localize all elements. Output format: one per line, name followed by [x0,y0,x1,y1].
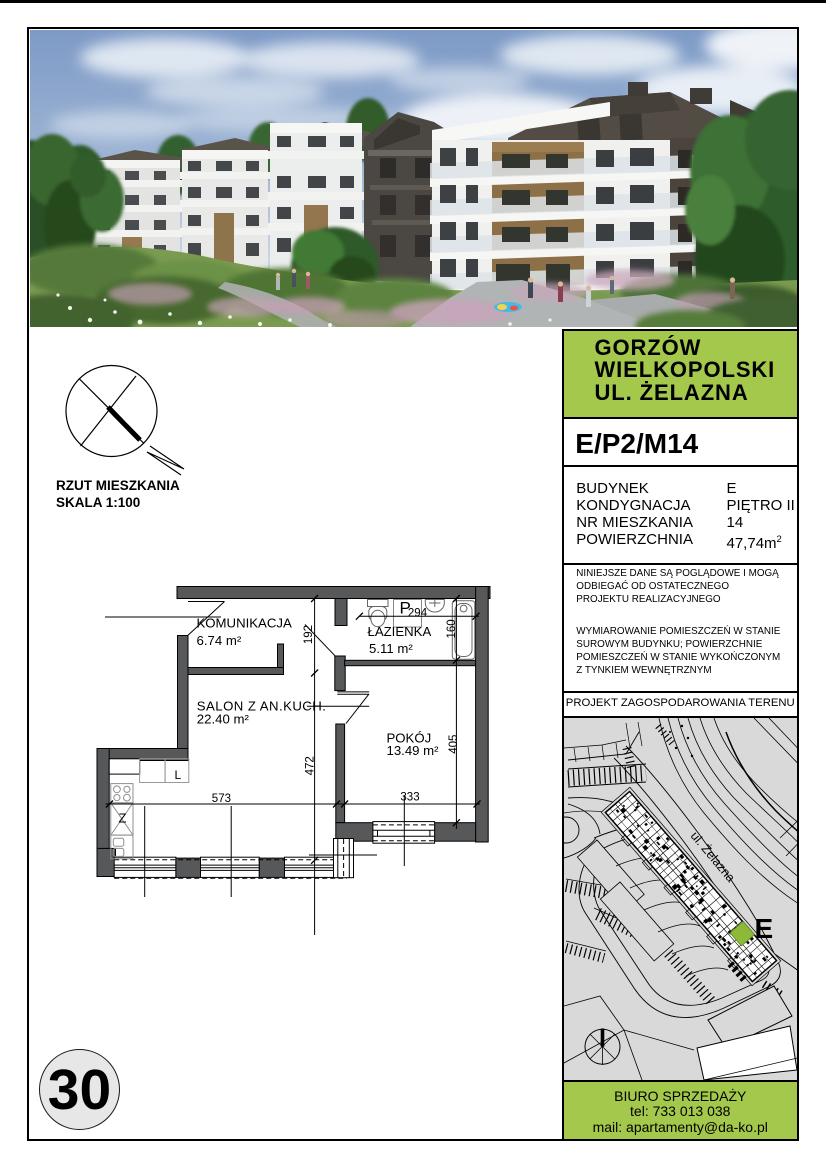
svg-text:6.74 m²: 6.74 m² [197,633,242,648]
svg-text:160: 160 [446,619,458,638]
svg-text:KOMUNIKACJA: KOMUNIKACJA [197,616,292,631]
svg-text:13.49 m²: 13.49 m² [387,743,440,758]
svg-text:333: 333 [400,792,419,804]
svg-text:405: 405 [448,735,460,754]
svg-text:L: L [175,768,182,782]
svg-text:472: 472 [304,756,316,775]
svg-text:192: 192 [303,625,315,644]
svg-text:22.40 m²: 22.40 m² [197,711,250,726]
svg-text:294: 294 [408,608,428,620]
svg-text:Z: Z [119,811,127,826]
svg-text:5.11 m²: 5.11 m² [369,641,413,656]
svg-text:E: E [754,913,773,944]
svg-text:ŁAZIENKA: ŁAZIENKA [368,624,432,639]
svg-text:573: 573 [212,793,231,805]
